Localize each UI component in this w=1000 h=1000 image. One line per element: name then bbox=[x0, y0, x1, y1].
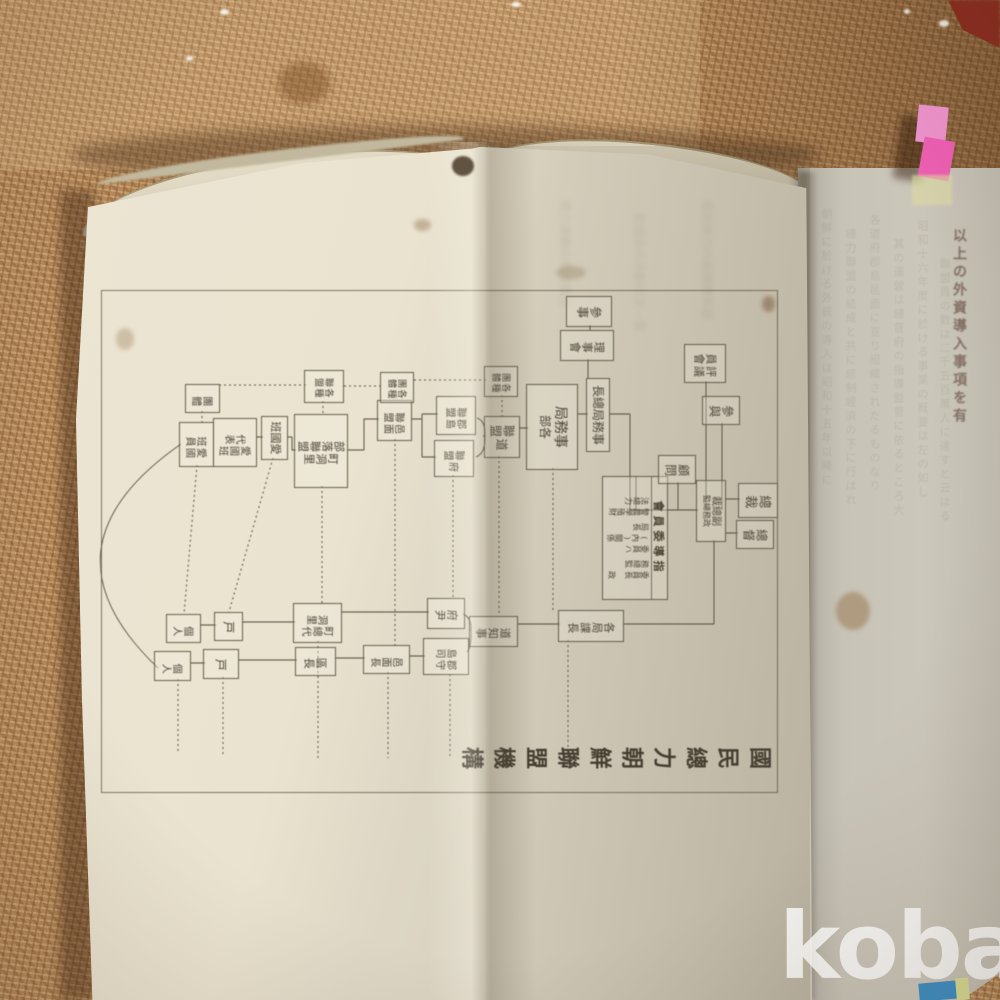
org-box-kojin-a: 個人 bbox=[166, 614, 201, 643]
org-box-yumen-cho: 邑面長 bbox=[363, 645, 410, 674]
org-box-sosai: 總裁 bbox=[738, 483, 778, 518]
org-box-label: 邑面長 bbox=[370, 654, 403, 665]
org-box-label: 理事會 bbox=[569, 340, 605, 352]
next-page-visible-text: 以上の外資導入事項を有 bbox=[948, 228, 968, 588]
ghost-text-column: 朝鮮に於ける外資の導入は昭和十五年以降に bbox=[818, 208, 834, 768]
org-box-cho-dori-buraku-renmei: 町洞里部落聯盟 bbox=[294, 414, 348, 488]
org-box-label: 各種 bbox=[387, 388, 407, 397]
org-box-label: 總裁 bbox=[744, 494, 772, 508]
org-box-yumen-renmei: 邑面聯盟 bbox=[377, 400, 412, 441]
ghost-text-column: 昭和十六年度に於ける事業の概要は左の如し bbox=[914, 220, 930, 800]
lint-speck bbox=[220, 9, 229, 15]
org-box-gunshu-toshi: 郡守島司 bbox=[423, 638, 469, 675]
org-box-label: 參事 bbox=[576, 305, 602, 318]
org-box-label: 洞里 bbox=[307, 612, 329, 623]
org-box-label: 個人 bbox=[162, 661, 184, 672]
org-box-label: 個人 bbox=[173, 623, 195, 634]
lint-speck bbox=[904, 9, 910, 14]
org-box-kakushu-dantai-2: 各種團體 bbox=[380, 372, 414, 403]
org-box-kojin-b: 個人 bbox=[154, 651, 191, 681]
foxing-stain bbox=[116, 328, 134, 350]
foxing-stain bbox=[836, 592, 870, 630]
org-box-label: 島司 bbox=[435, 646, 457, 657]
yellow-sticky-tab bbox=[912, 175, 952, 205]
org-box-dantai: 團體 bbox=[185, 384, 220, 413]
org-box-label: 團體 bbox=[192, 393, 214, 404]
org-box-label: 總督 bbox=[742, 528, 768, 541]
org-box-kakushu-dantai-1: 各種團體 bbox=[484, 366, 518, 397]
committee-note-col: 委員ハ(內)關係局長 bbox=[603, 522, 649, 555]
org-box-sanyo: 參與 bbox=[702, 396, 740, 425]
org-box-aikoku-han-daihyo: 愛國班代表 bbox=[213, 418, 257, 467]
org-box-komon: 顧問 bbox=[658, 455, 696, 484]
chart-title: 國民總力朝鮮聯盟機構 bbox=[452, 740, 772, 772]
org-box-label: 代表 bbox=[224, 432, 246, 443]
org-box-aikoku-han: 愛國班 bbox=[261, 416, 288, 460]
ghost-text-column: 各道府郡島邑面に亘り組織されたるものなり bbox=[866, 214, 882, 834]
org-box-label: 各種 bbox=[314, 387, 334, 396]
org-box-label: 班員 bbox=[186, 434, 208, 445]
lint-speck bbox=[939, 20, 949, 27]
org-box-gunto-renmei: 郡島聯盟 bbox=[436, 396, 476, 435]
org-box-kucho: 區長 bbox=[295, 647, 336, 676]
org-box-label: 府 bbox=[449, 459, 460, 470]
org-box-label: 各種 bbox=[491, 382, 511, 391]
org-box-label: 道知事 bbox=[476, 626, 512, 638]
lint-speck bbox=[511, 2, 521, 7]
org-box-label: 部落聯盟 bbox=[297, 439, 345, 451]
org-box-label: 聯盟 bbox=[445, 405, 467, 416]
org-box-aikoku-han-in: 愛國班員 bbox=[179, 422, 214, 467]
ghost-text-column: 總力聯盟の結成と共に統制經濟の下に行はれ bbox=[842, 228, 858, 828]
org-box-riji-kai: 理事會 bbox=[560, 330, 614, 361]
photo-of-open-book: 朝鮮に於ける外資の導入は昭和十五年以降に 總力聯盟の結成と共に統制經濟の下に行は… bbox=[0, 0, 1000, 1000]
yellow-object-corner bbox=[955, 977, 970, 1000]
fabric-stain bbox=[278, 62, 330, 104]
org-box-label: 郡島 bbox=[445, 416, 467, 427]
org-chart: 國民總力朝鮮聯盟機構 指導委員會 委員長 政務總監 委員ハ(內)關係局長 警農學… bbox=[90, 288, 780, 803]
org-chart-rotated-canvas: 國民總力朝鮮聯盟機構 指導委員會 委員長 政務總監 委員ハ(內)關係局長 警農學… bbox=[90, 288, 780, 803]
org-box-label: 副總裁 bbox=[710, 496, 721, 526]
org-box-label: 道 bbox=[496, 438, 509, 451]
org-box-sanji: 參事 bbox=[566, 296, 612, 327]
org-box-label: 政務總監 bbox=[702, 495, 710, 527]
org-box-label: 聯盟 bbox=[384, 410, 406, 421]
org-box-label: 聯盟 bbox=[314, 377, 334, 386]
org-box-label: 愛國班 bbox=[219, 443, 252, 454]
org-box-do-chiji: 道知事 bbox=[469, 616, 518, 647]
org-box-label: 員會 bbox=[693, 351, 717, 363]
org-box-label: 聯盟 bbox=[489, 424, 515, 437]
committee-note-col: 委員長 政務總監 bbox=[603, 559, 649, 581]
org-box-fuin: 府尹 bbox=[427, 598, 465, 629]
org-box-fu-renmei: 府聯盟 bbox=[434, 440, 474, 477]
lint-speck bbox=[186, 56, 193, 61]
org-box-label: 事務局 bbox=[551, 406, 566, 448]
org-box-label: 團體 bbox=[387, 378, 407, 387]
org-box-label: 區長 bbox=[304, 656, 328, 668]
org-box-label: 參與 bbox=[708, 404, 734, 417]
org-box-jimukyoku-socho: 事務局總長 bbox=[586, 378, 610, 452]
foxing-stain bbox=[762, 296, 775, 312]
org-box-label: 評議 bbox=[693, 364, 717, 376]
org-box-label: 府尹 bbox=[434, 608, 458, 620]
org-box-label: 聯盟 bbox=[443, 448, 465, 459]
org-box-shido-iinkai: 指導委員會 委員長 政務總監 委員ハ(內)關係局長 警農學殖財法總力 bbox=[602, 476, 668, 600]
org-box-label: 町總代 bbox=[301, 624, 334, 635]
committee-note-col: 警農學殖財法總力 bbox=[603, 496, 649, 518]
org-box-label: 戸 bbox=[215, 658, 228, 671]
org-box-label: 各部 bbox=[538, 415, 551, 439]
org-box-label: 郡守 bbox=[435, 657, 457, 668]
org-box-label: 各局課長 bbox=[567, 620, 615, 632]
ghost-text-column: 其の運營は總督府の指導監督に依るところ大 bbox=[890, 238, 906, 798]
org-box-label: 町洞里 bbox=[303, 452, 339, 464]
dark-speck-stain bbox=[452, 156, 474, 176]
org-box-kakkyoku-kacho: 各局課長 bbox=[558, 610, 624, 642]
org-box-label: 戸 bbox=[222, 620, 235, 633]
org-box-hyogiin-kai: 評議員會 bbox=[684, 344, 726, 383]
org-box-cho-sodai-dori: 町總代洞里 bbox=[293, 603, 342, 643]
committee-header: 指導委員會 bbox=[651, 477, 667, 599]
org-box-label: 顧問 bbox=[664, 463, 690, 476]
org-box-ko-a: 戸 bbox=[214, 612, 243, 641]
org-box-fuku-sosai: 副總裁政務總監 bbox=[696, 480, 726, 542]
org-box-label: 邑面 bbox=[384, 421, 406, 432]
next-page: 朝鮮に於ける外資の導入は昭和十五年以降に 總力聯盟の結成と共に統制經濟の下に行は… bbox=[798, 168, 1000, 1000]
org-chart-lines bbox=[90, 288, 780, 803]
org-box-label: 團體 bbox=[491, 372, 511, 381]
org-box-ko-b: 戸 bbox=[203, 649, 239, 679]
org-box-kakushu-renmei: 各種聯盟 bbox=[304, 370, 344, 403]
committee-annotation: 委員長 政務總監 委員ハ(內)關係局長 警農學殖財法總力 bbox=[603, 477, 651, 599]
blue-object-corner bbox=[918, 980, 959, 1000]
foxing-stain bbox=[414, 219, 431, 231]
org-box-jimukyoku-kakubu: 事務局各部 bbox=[526, 384, 578, 470]
foxing-stain bbox=[556, 266, 586, 279]
org-box-label: 愛國 bbox=[186, 445, 208, 456]
org-box-do-renmei: 道聯盟 bbox=[484, 416, 520, 458]
org-box-sotoku: 總督 bbox=[736, 520, 774, 549]
